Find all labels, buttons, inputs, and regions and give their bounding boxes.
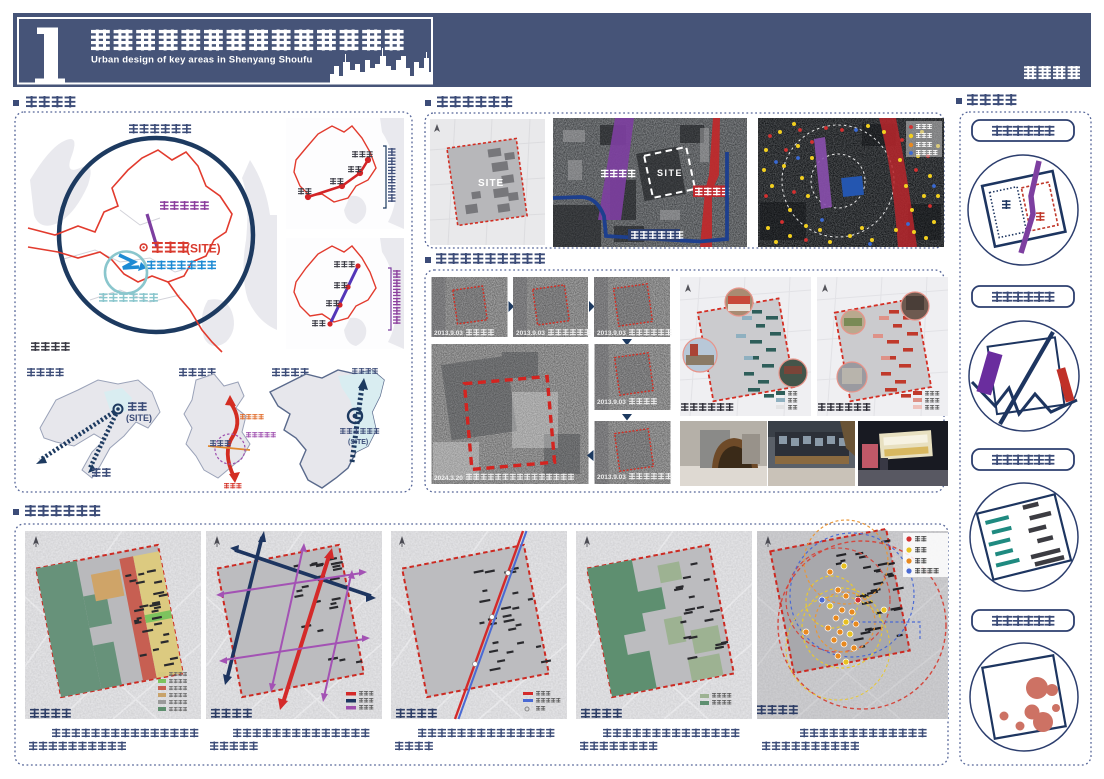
svg-text:2013.9.03: 2013.9.03 [516, 330, 545, 337]
svg-text:2013.9.03: 2013.9.03 [597, 474, 626, 481]
svg-text:2013.9.03: 2013.9.03 [597, 399, 626, 406]
svg-text:Urban design of key areas in S: Urban design of key areas in Shenyang Sh… [91, 55, 313, 66]
svg-text:(SITE): (SITE) [186, 242, 221, 256]
svg-text:SITE: SITE [657, 168, 683, 178]
svg-text:2013.9.03: 2013.9.03 [434, 330, 463, 337]
svg-text:2024.3.20: 2024.3.20 [434, 475, 463, 482]
svg-text:(SITE): (SITE) [126, 413, 152, 423]
svg-text:2013.9.03: 2013.9.03 [597, 330, 626, 337]
svg-text:(SITE): (SITE) [348, 439, 368, 446]
svg-text:SITE: SITE [478, 178, 504, 189]
